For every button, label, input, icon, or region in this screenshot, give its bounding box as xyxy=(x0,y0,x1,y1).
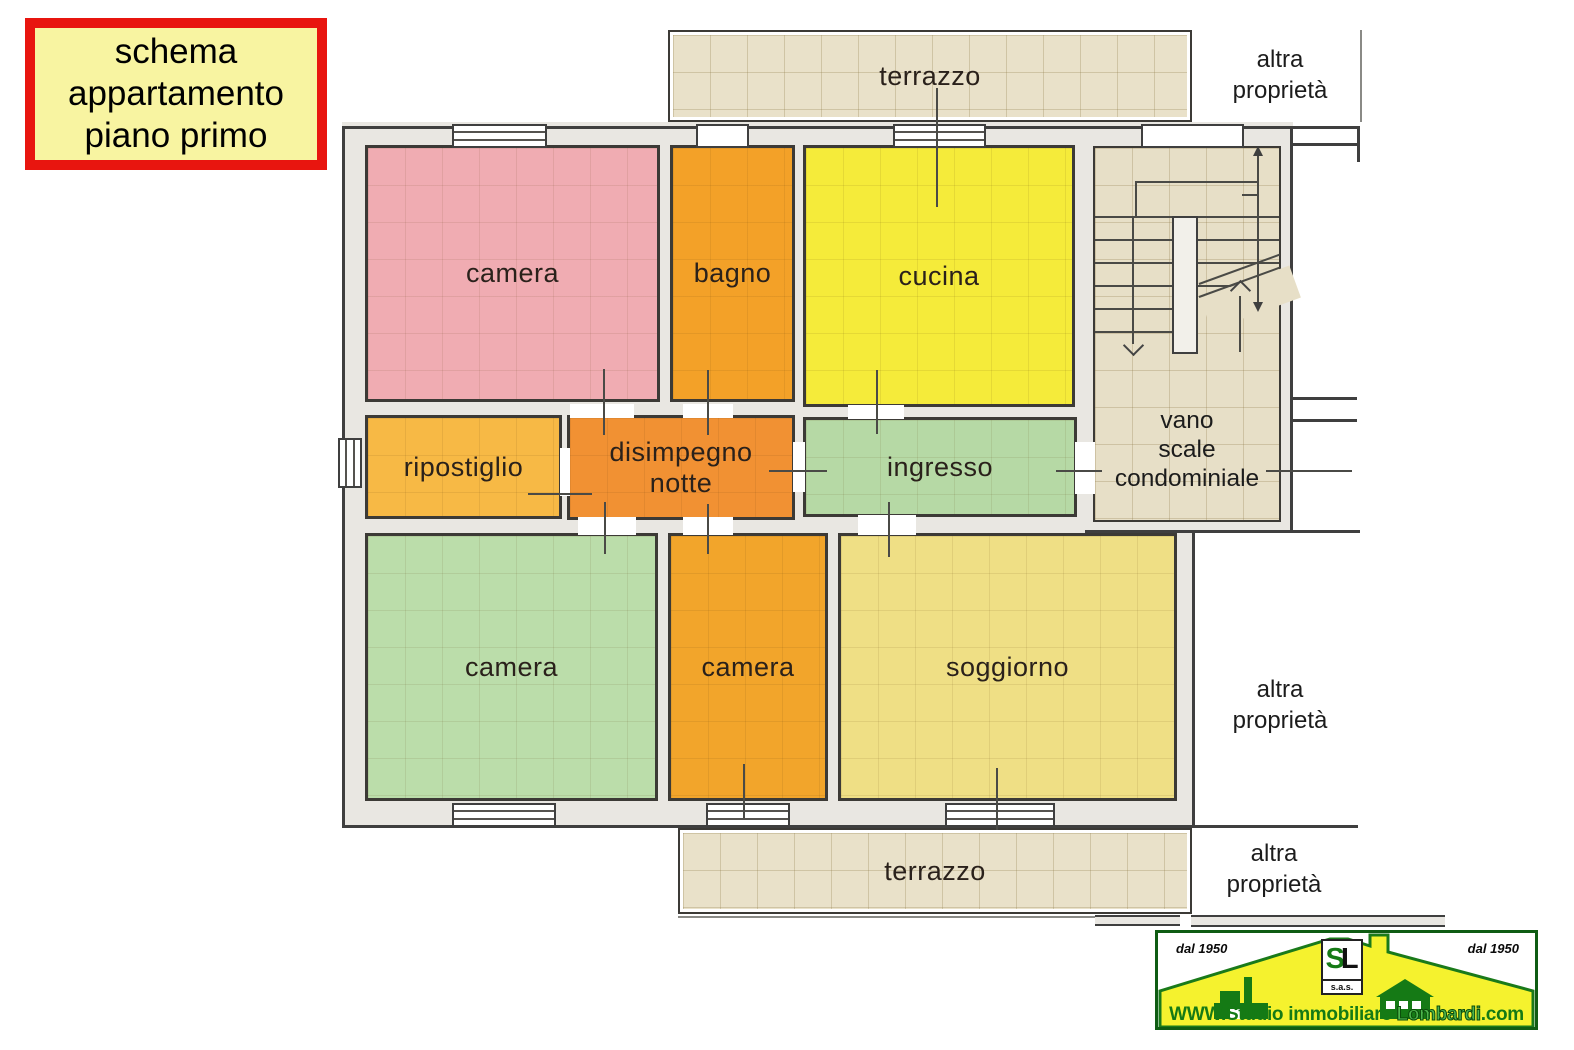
door-opening xyxy=(578,517,636,535)
window-symbol xyxy=(696,124,749,148)
logo-company-type: s.a.s. xyxy=(1323,979,1361,993)
wall-bar xyxy=(1191,915,1445,927)
door-opening xyxy=(560,448,570,496)
other-property-south-label: altra proprietà xyxy=(1196,838,1352,900)
room-label-disimpegno: disimpegno xyxy=(609,437,752,468)
wall-stub-topright xyxy=(1357,126,1360,162)
terrace-north: terrazzo xyxy=(668,30,1192,122)
room-label-soggiorno: soggiorno xyxy=(946,652,1069,683)
window-symbol xyxy=(452,124,547,148)
title-box: schema appartamento piano primo xyxy=(25,18,327,170)
room-camera-ovest: camera xyxy=(365,533,658,801)
room-label-cucina: cucina xyxy=(898,261,979,292)
leader-line xyxy=(743,764,745,818)
room-label-ingresso: ingresso xyxy=(887,452,993,483)
logo-dal-1950-right: dal 1950 xyxy=(1468,941,1519,956)
logo-website-text: WWW.Studio immobiliare Lombardi.com xyxy=(1162,1004,1531,1028)
leader-line xyxy=(604,502,606,554)
leader-line xyxy=(936,88,938,207)
room-label-ripostiglio: ripostiglio xyxy=(404,452,524,483)
room-bagno: bagno xyxy=(670,145,795,402)
stair-up-arrow-line xyxy=(1239,296,1241,352)
room-label-camera-ovest: camera xyxy=(465,652,558,683)
room-ingresso: ingresso xyxy=(803,417,1077,517)
leader-line xyxy=(603,369,605,435)
title-line-3: piano primo xyxy=(85,115,268,157)
leader-line xyxy=(1266,470,1352,472)
terrace-south-label: terrazzo xyxy=(884,856,986,887)
stair-newel-wall xyxy=(1172,216,1198,354)
logo-monogram-emblem: S L s.a.s. xyxy=(1321,939,1363,995)
title-line-2: appartamento xyxy=(68,73,284,115)
stair-down-arrow-line xyxy=(1132,216,1134,344)
window-symbol xyxy=(893,124,986,148)
wall-line-altra-sud-top xyxy=(1192,825,1358,828)
room-label-bagno: bagno xyxy=(694,258,772,289)
stair-dimension-arrow-up xyxy=(1253,146,1263,156)
leader-line xyxy=(876,370,878,434)
logo-dal-1950-left: dal 1950 xyxy=(1176,941,1227,956)
leader-line xyxy=(888,502,890,557)
stair-landing-line xyxy=(1135,183,1137,216)
wall-line-corridor-mid1 xyxy=(1293,397,1357,400)
window-symbol xyxy=(1141,124,1244,148)
room-disimpegno-notte: disimpegno notte xyxy=(567,415,795,520)
door-opening xyxy=(1075,442,1095,494)
stair-dimension-arrow-down xyxy=(1253,302,1263,312)
wall-line-corridor-mid2 xyxy=(1293,419,1357,422)
door-opening xyxy=(570,404,634,418)
door-opening xyxy=(793,442,805,492)
other-property-north-label: altra proprietà xyxy=(1200,44,1360,106)
stair-dimension-line xyxy=(1257,152,1259,304)
room-cucina: cucina xyxy=(803,145,1075,407)
floor-plan-canvas: schema appartamento piano primo terrazzo… xyxy=(0,0,1574,1050)
wall-line-altra-right-top xyxy=(1260,530,1360,533)
stairwell-label: vano scale condominiale xyxy=(1096,406,1278,493)
wall-line-corridor-top xyxy=(1293,143,1359,146)
logo-monogram-l: L xyxy=(1341,941,1359,977)
terrace-north-label: terrazzo xyxy=(879,61,981,92)
logo-brand-name: Lombardi xyxy=(1397,1004,1481,1025)
window-symbol xyxy=(706,803,790,827)
leader-line xyxy=(528,493,592,495)
room-label-camera-sud: camera xyxy=(701,652,794,683)
window-symbol xyxy=(452,803,556,827)
terrace-south: terrazzo xyxy=(678,828,1192,914)
other-property-east-label: altra proprietà xyxy=(1200,674,1360,736)
room-camera-nord: camera xyxy=(365,145,660,402)
room-soggiorno: soggiorno xyxy=(838,533,1177,801)
room-label-notte: notte xyxy=(650,468,713,499)
leader-line xyxy=(769,470,827,472)
window-symbol xyxy=(945,803,1055,827)
terrace-outer-line xyxy=(678,916,1095,918)
leader-line xyxy=(707,370,709,435)
window-symbol xyxy=(338,438,362,488)
wall-line-altra-top-right xyxy=(1360,30,1362,122)
title-line-1: schema xyxy=(115,31,238,73)
stair-landing-line xyxy=(1242,194,1258,196)
leader-line xyxy=(996,768,998,830)
wall-line-soggiorno-right xyxy=(1192,533,1195,828)
agency-logo: dal 1950 dal 1950 S L s.a.s. WWW.Studio … xyxy=(1155,930,1538,1030)
leader-line xyxy=(707,504,709,554)
stair-landing-line xyxy=(1135,181,1259,183)
door-opening xyxy=(858,515,916,535)
room-label-camera-nord: camera xyxy=(466,258,559,289)
room-camera-sud: camera xyxy=(668,533,828,801)
room-ripostiglio: ripostiglio xyxy=(365,415,562,519)
wall-bar xyxy=(1095,915,1180,926)
